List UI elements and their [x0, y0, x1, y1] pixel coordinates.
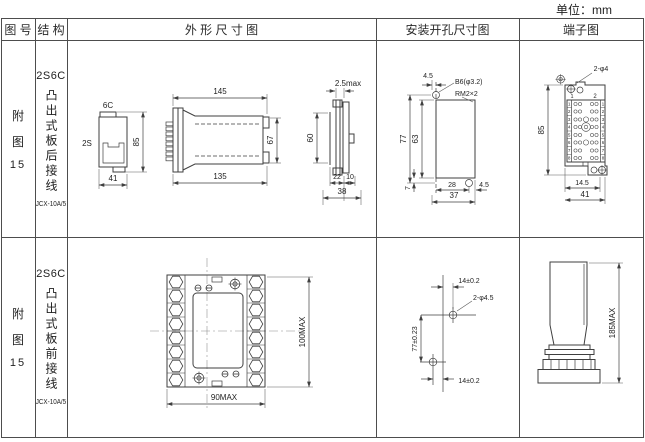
dim-top-4-5: 4.5	[423, 73, 433, 80]
hole-spec-label: B6(φ3.2)	[455, 79, 483, 86]
col-label-2: 2	[593, 94, 597, 100]
fig-char: 附	[12, 107, 24, 124]
terminal-row-numbers: 11 22 33 44 55 66 77 88	[568, 102, 605, 161]
row1-mounting-svg: 4.5 B6(φ3.2) RM2×2 77 63 7 28 4.5 37	[376, 40, 519, 237]
svg-text:7: 7	[602, 148, 605, 153]
row2-outline-svg: 90MAX 100MAX	[67, 237, 376, 437]
svg-text:1: 1	[568, 102, 571, 107]
dim-41: 41	[109, 174, 118, 183]
fig-char: 图	[12, 133, 24, 150]
dim-60: 60	[306, 133, 315, 142]
structure-subtype: JCX-10A/5	[36, 201, 66, 208]
mount-screw	[193, 372, 206, 385]
row1-terminal-svg: 2-φ4 1 2 11 22 33 44 55 66 77	[519, 40, 643, 237]
dim-top-14: 14±0.2	[458, 278, 479, 285]
front-view: 6C 2S 85 41	[82, 101, 147, 189]
svg-text:6: 6	[602, 140, 605, 145]
row2-mounting-svg: 14±0.2 2-φ4.5 77±0.23 14±0.2	[376, 237, 519, 437]
dim-90max: 90MAX	[211, 393, 238, 402]
dim-100max: 100MAX	[298, 316, 307, 347]
header-structure: 结 构	[35, 18, 67, 40]
header-mounting: 安装开孔尺寸图	[376, 18, 519, 40]
svg-text:4: 4	[602, 125, 605, 130]
svg-text:1: 1	[602, 102, 605, 107]
dim-41: 41	[581, 190, 590, 199]
holes-label: 2-φ4.5	[473, 295, 494, 302]
row2-terminal-drawing: 185MAX	[519, 237, 643, 437]
header-outline: 外 形 尺 寸 图	[67, 18, 376, 40]
row2-fig-no: 附 图 15	[1, 237, 35, 437]
screw	[195, 285, 201, 291]
row1-terminal-drawing: 2-φ4 1 2 11 22 33 44 55 66 77	[519, 40, 643, 237]
mount-screw	[229, 278, 242, 291]
mount-hole-top	[555, 74, 565, 84]
row1-mounting-drawing: 4.5 B6(φ3.2) RM2×2 77 63 7 28 4.5 37	[376, 40, 519, 237]
dim-25max: 2.5max	[335, 79, 361, 88]
svg-text:7: 7	[568, 148, 571, 153]
svg-text:3: 3	[602, 117, 605, 122]
svg-text:8: 8	[602, 156, 605, 161]
strip-ticks	[567, 108, 605, 155]
fig-char: 图	[12, 331, 24, 348]
table-border-right	[643, 18, 644, 437]
dim-67: 67	[266, 135, 275, 144]
datasheet-page: 单位：mm 图 号 结 构 外 形 尺 寸 图 安装开孔尺寸图 端子图 附 图 …	[0, 0, 645, 442]
dim-2s: 2S	[82, 139, 92, 148]
unit-label: 单位：mm	[556, 1, 612, 18]
dim-185max: 185MAX	[608, 307, 617, 338]
dim-38: 38	[338, 187, 347, 196]
dim-37: 37	[450, 191, 459, 200]
panel-section-view: 2.5max 60 22 10 38	[306, 79, 361, 205]
dim-85: 85	[132, 137, 141, 146]
fig-num: 15	[10, 357, 26, 369]
structure-subtype: JCX-10A/5	[36, 399, 66, 406]
row2-outline-drawing: 90MAX 100MAX	[67, 237, 376, 437]
row1-outline-svg: 6C 2S 85 41 145 67 135	[67, 40, 376, 237]
thread-spec-label: RM2×2	[455, 91, 478, 98]
header-drawing-no: 图 号	[1, 18, 35, 40]
dim-6c: 6C	[103, 101, 113, 110]
svg-text:5: 5	[568, 133, 571, 138]
structure-type: 凸出式板前接线	[45, 287, 57, 392]
terminal-holes-label: 2-φ4	[594, 66, 609, 73]
col-label-1: 1	[570, 94, 573, 100]
dim-22: 22	[333, 174, 341, 181]
dim-77: 77	[399, 134, 408, 143]
row2-mounting-drawing: 14±0.2 2-φ4.5 77±0.23 14±0.2	[376, 237, 519, 437]
dim-10: 10	[346, 174, 354, 181]
dim-14-5: 14.5	[575, 180, 589, 187]
structure-model: 2S6C	[36, 268, 66, 280]
structure-type: 凸出式板后接线	[45, 89, 57, 194]
row2-terminal-svg: 185MAX	[519, 237, 643, 437]
svg-text:8: 8	[568, 156, 571, 161]
dim-85: 85	[537, 125, 546, 134]
terminal-contacts	[574, 102, 598, 159]
dim-77: 77±0.23	[412, 326, 419, 351]
dim-bottom-14: 14±0.2	[458, 378, 479, 385]
screw	[222, 371, 228, 377]
structure-model: 2S6C	[36, 70, 66, 82]
dim-7: 7	[405, 186, 412, 190]
cell-dividers	[167, 289, 265, 373]
svg-text:2: 2	[602, 109, 605, 114]
dim-63: 63	[411, 134, 420, 143]
svg-text:6: 6	[568, 140, 571, 145]
svg-text:2: 2	[568, 109, 571, 114]
table-border-bottom	[1, 437, 644, 438]
screw	[233, 371, 239, 377]
svg-text:4: 4	[568, 125, 571, 130]
row2-structure: 2S6C 凸出式板前接线 JCX-10A/5	[35, 237, 67, 437]
dim-right-4-5: 4.5	[479, 182, 489, 189]
screw	[206, 285, 212, 291]
dim-135: 135	[213, 172, 227, 181]
fig-char: 附	[12, 305, 24, 322]
header-terminal: 端子图	[519, 18, 643, 40]
svg-text:5: 5	[602, 133, 605, 138]
row1-outline-drawing: 6C 2S 85 41 145 67 135	[67, 40, 376, 237]
socket-cell-dividers	[551, 360, 591, 370]
dim-145: 145	[213, 87, 227, 96]
svg-text:3: 3	[568, 117, 571, 122]
row1-structure: 2S6C 凸出式板后接线 JCX-10A/5	[35, 40, 67, 237]
side-view: 145 67 135	[166, 87, 281, 186]
row1-fig-no: 附 图 15	[1, 40, 35, 237]
dim-28: 28	[448, 182, 456, 189]
fig-num: 15	[10, 159, 26, 171]
